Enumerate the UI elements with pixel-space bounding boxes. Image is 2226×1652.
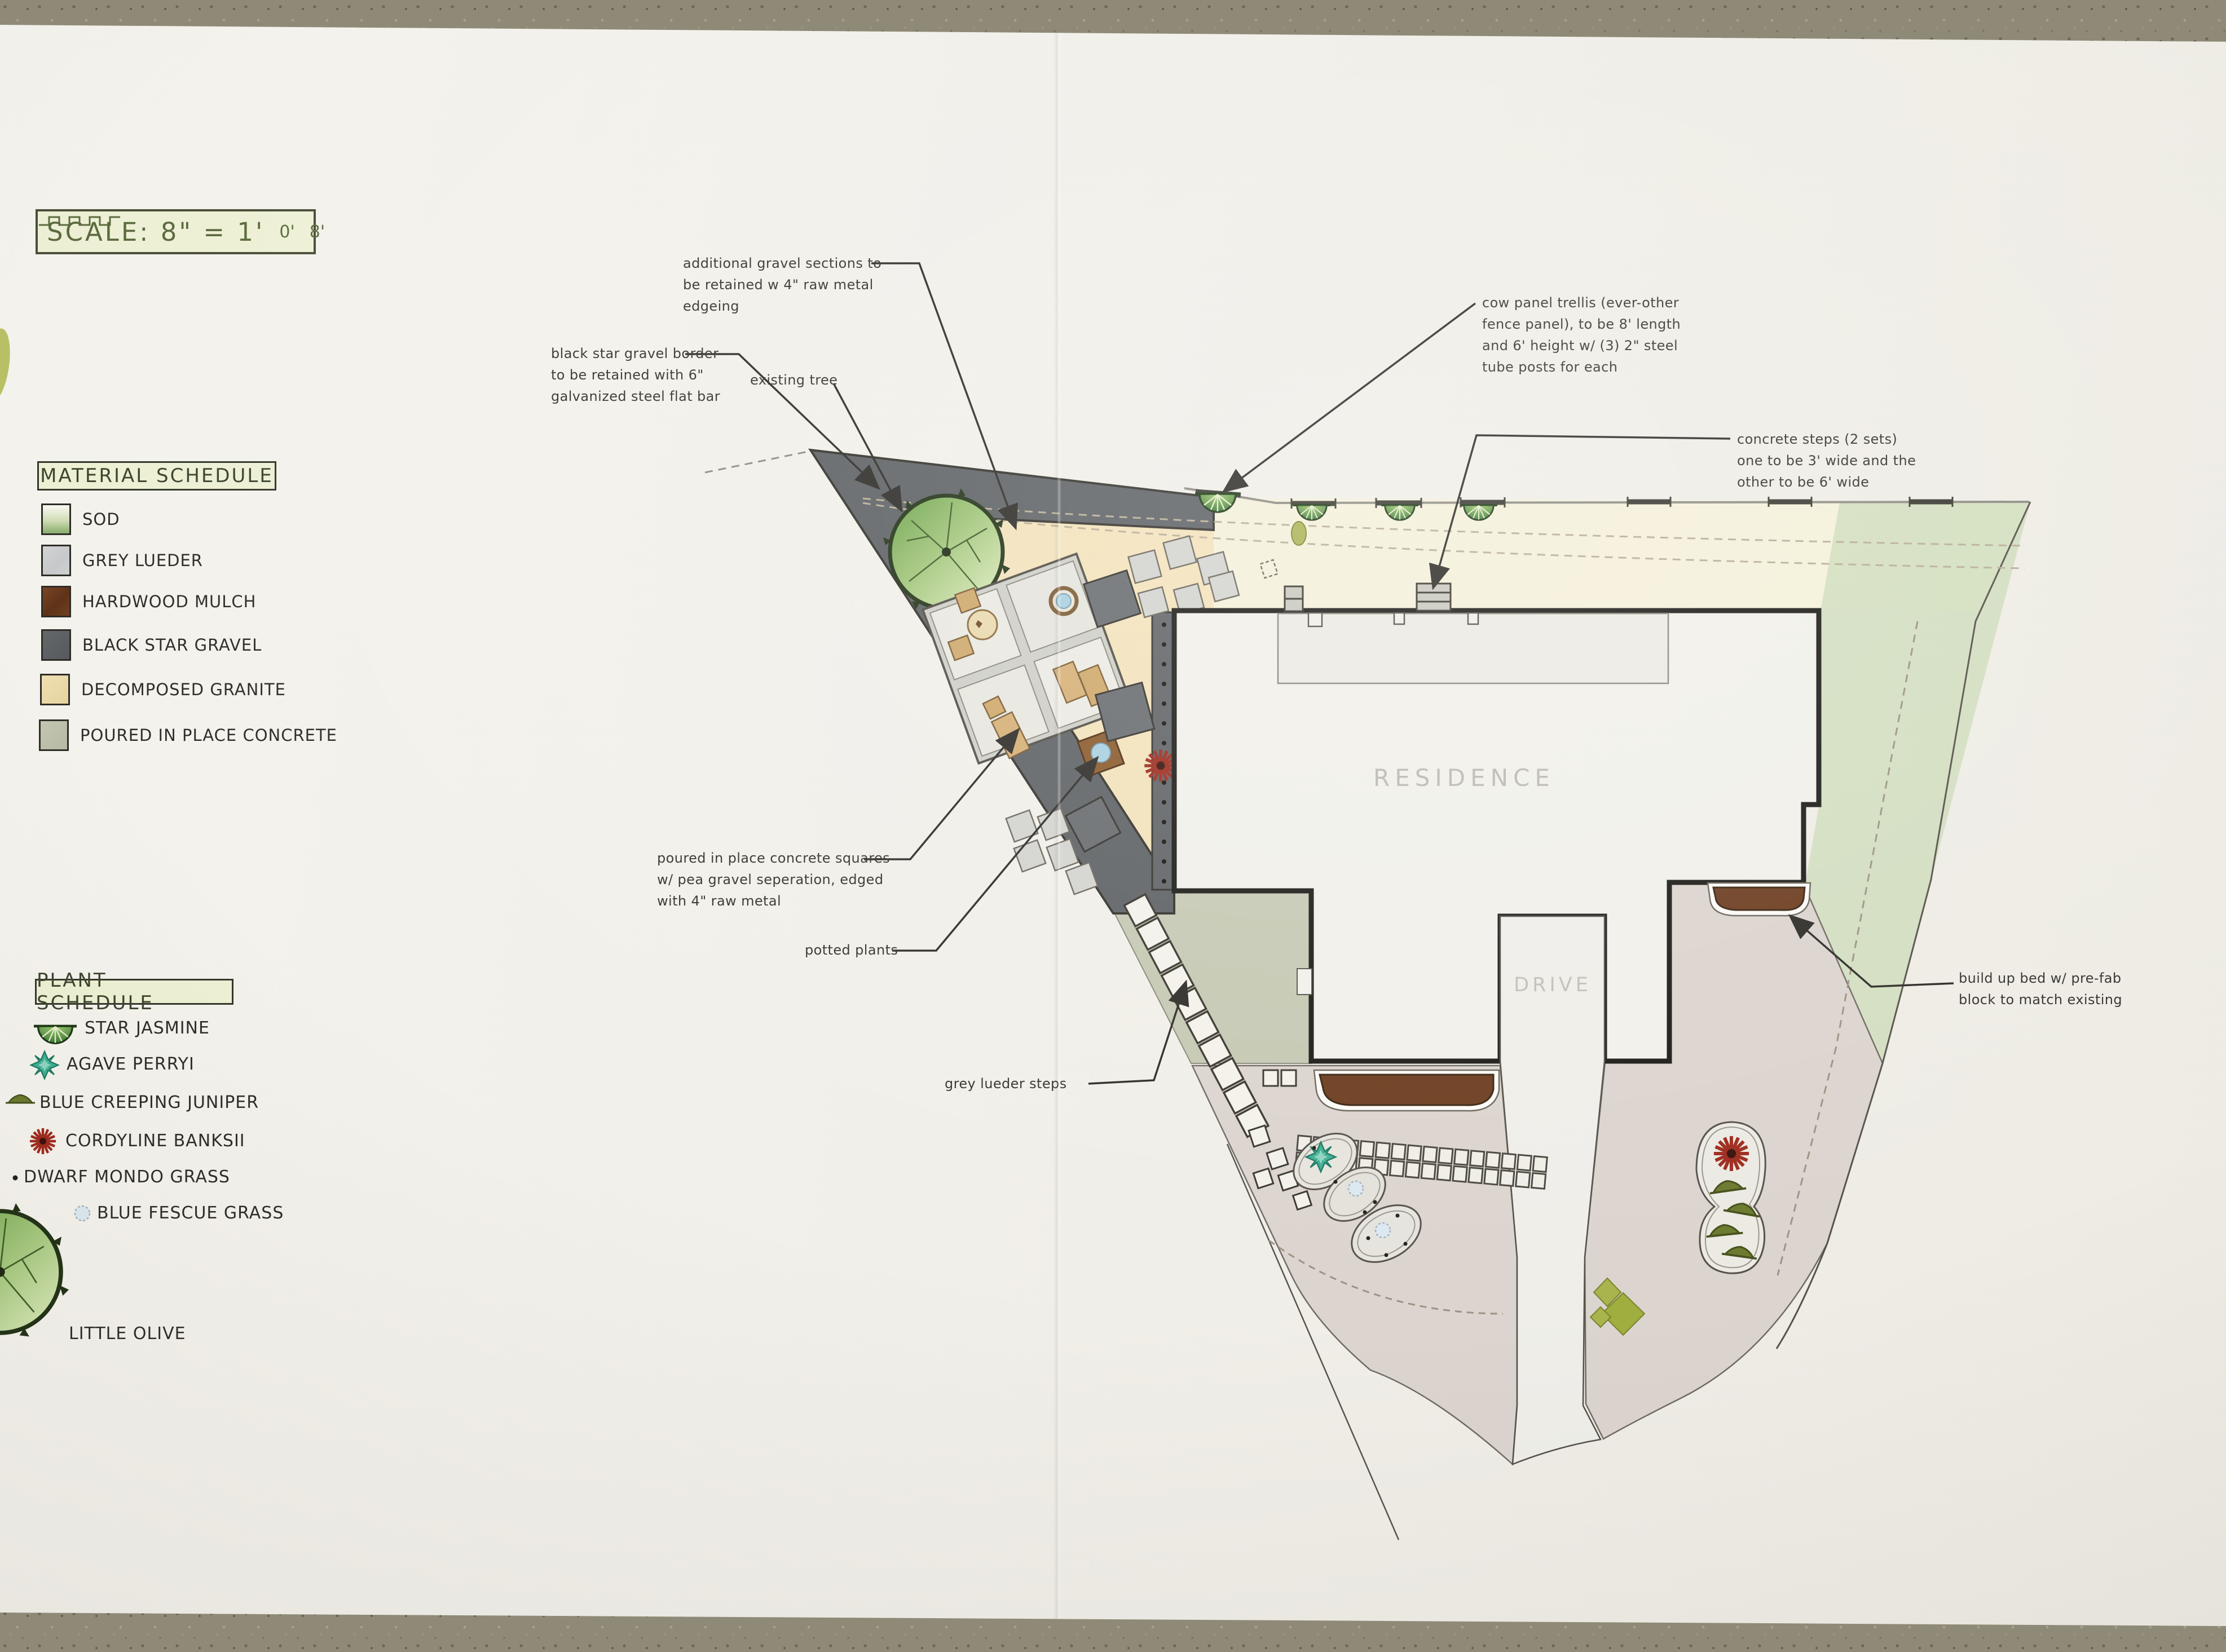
material-row-grey-lueder: GREY LUEDER [41,545,203,576]
site-plan-drawing: RESIDENCE DRIVE [0,0,2226,1652]
hardwood-mulch-bed-south [1314,1070,1499,1111]
plant-schedule-title: PLANT SCHEDULE [35,979,233,1005]
material-schedule-title: MATERIAL SCHEDULE [37,461,276,491]
plant-row-mondo: DWARF MONDO GRASS [24,1167,230,1187]
annotation-additional-gravel: additional gravel sections to be retaine… [683,253,881,317]
cordyline-banksii-icon [30,1128,56,1154]
annotation-potted-plants: potted plants [805,939,898,961]
poured-concrete-swatch [39,719,69,751]
material-row-hardwood-mulch: HARDWOOD MULCH [41,586,256,617]
little-olive-icon [0,1203,69,1337]
plan-sheet: RESIDENCE DRIVE SCALE: 8" = 1' 0' 8' [0,0,2226,1652]
plant-row-cordyline: CORDYLINE BANKSII [65,1131,245,1151]
wall-notch [1297,969,1312,995]
ruler-icon [38,211,122,231]
agave-perryi-icon [31,1052,58,1079]
plant-row-fescue: BLUE FESCUE GRASS [97,1203,284,1223]
annotation-poured-squares: poured in place concrete squares w/ pea … [657,847,890,912]
grey-lueder-swatch [41,545,71,576]
photo-of-landscape-plan: RESIDENCE DRIVE SCALE: 8" = 1' 0' 8' [0,0,2226,1652]
annotation-concrete-steps: concrete steps (2 sets) one to be 3' wid… [1737,429,1916,493]
material-row-black-star-gravel: BLACK STAR GRAVEL [41,629,262,661]
plant-row-agave: AGAVE PERRYI [67,1054,195,1074]
material-row-decomposed-granite: DECOMPOSED GRANITE [40,674,286,705]
hardwood-mulch-swatch [41,586,71,617]
leaf-at-edge [0,327,14,404]
annotation-black-star-border: black star gravel border to be retained … [551,343,720,407]
plant-row-star-jasmine: STAR JASMINE [85,1018,210,1038]
shrub-ellipse [1291,522,1306,545]
drive-label: DRIVE [1514,974,1592,996]
sod-swatch [41,503,71,535]
residence-label: RESIDENCE [1373,764,1555,792]
annotation-build-up-bed: build up bed w/ pre-fab block to match e… [1959,968,2122,1010]
planting-bed-east-bean [1696,1122,1765,1273]
scale-bar: SCALE: 8" = 1' 0' 8' [36,209,316,254]
material-row-poured-concrete: POURED IN PLACE CONCRETE [39,719,337,751]
blue-fescue-grass-icon [75,1206,90,1221]
star-jasmine-icon [34,1026,77,1043]
black-star-gravel-swatch [41,629,71,661]
annotation-cow-panel-trellis: cow panel trellis (ever-other fence pane… [1482,292,1681,378]
annotation-grey-lueder-steps: grey lueder steps [945,1073,1067,1094]
plant-row-little-olive: LITTLE OLIVE [69,1324,186,1344]
decomposed-granite-swatch [40,674,70,705]
ruler-end-label: 8' [310,222,325,242]
ruler-start-label: 0' [279,222,294,242]
material-row-sod: SOD [41,503,120,535]
build-up-bed-mulch [1708,883,1810,916]
blue-creeping-juniper-icon [6,1095,35,1103]
dwarf-mondo-grass-icon [13,1176,18,1181]
plant-row-juniper: BLUE CREEPING JUNIPER [39,1093,259,1112]
annotation-existing-tree: existing tree [750,369,837,391]
paper-fold-crease [1054,23,1061,1629]
